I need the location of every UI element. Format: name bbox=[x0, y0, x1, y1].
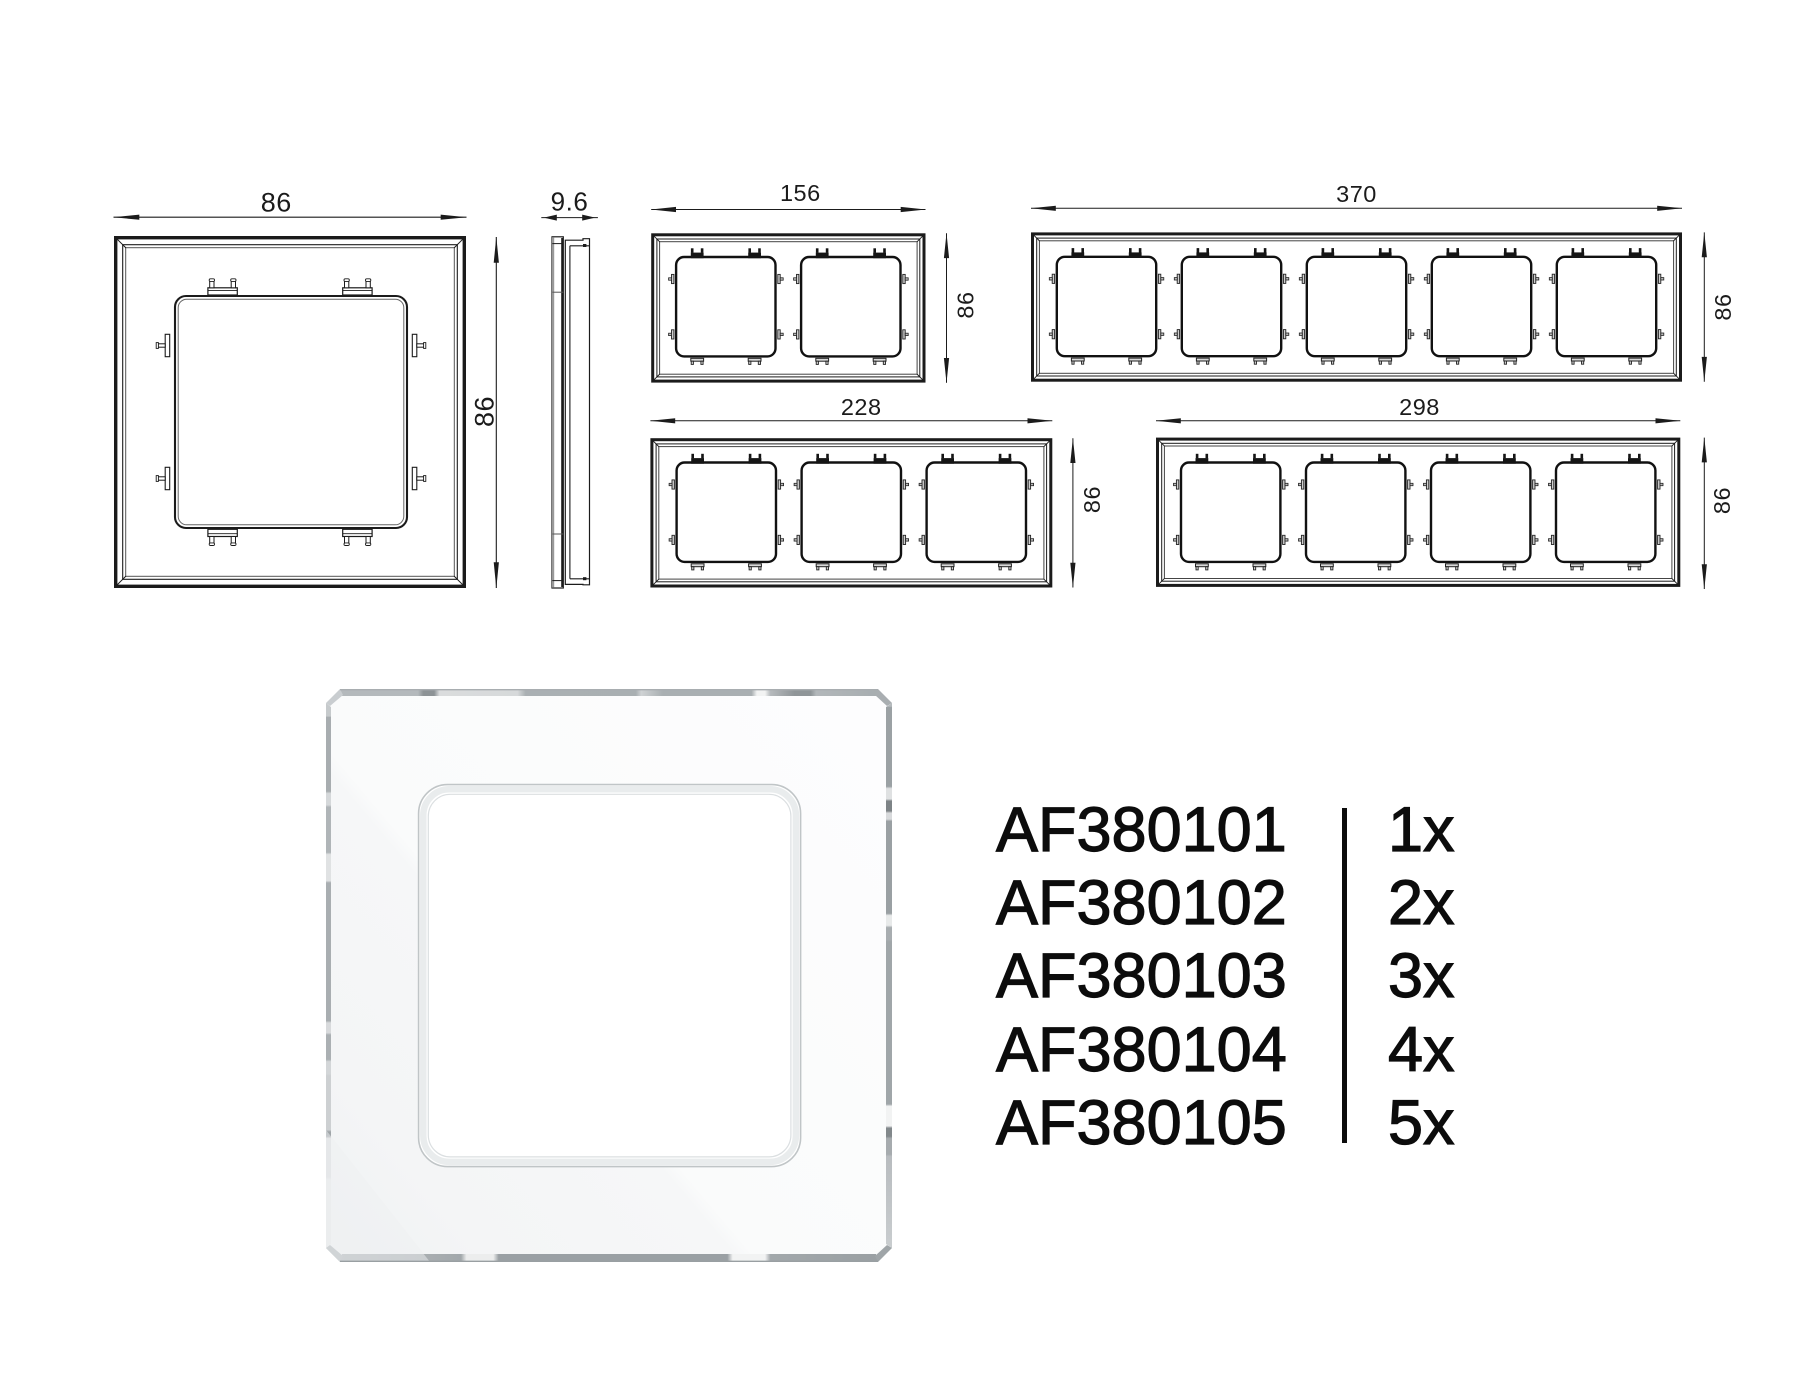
svg-text:86: 86 bbox=[953, 291, 979, 318]
svg-text:86: 86 bbox=[1709, 487, 1735, 514]
svg-text:298: 298 bbox=[1399, 394, 1440, 420]
svg-text:86: 86 bbox=[1710, 293, 1736, 320]
svg-text:370: 370 bbox=[1336, 181, 1377, 207]
svg-text:228: 228 bbox=[841, 394, 882, 420]
svg-text:86: 86 bbox=[261, 187, 292, 217]
svg-text:9.6: 9.6 bbox=[551, 186, 589, 216]
svg-text:86: 86 bbox=[470, 396, 500, 427]
svg-text:156: 156 bbox=[780, 180, 821, 206]
svg-text:86: 86 bbox=[1079, 486, 1105, 513]
